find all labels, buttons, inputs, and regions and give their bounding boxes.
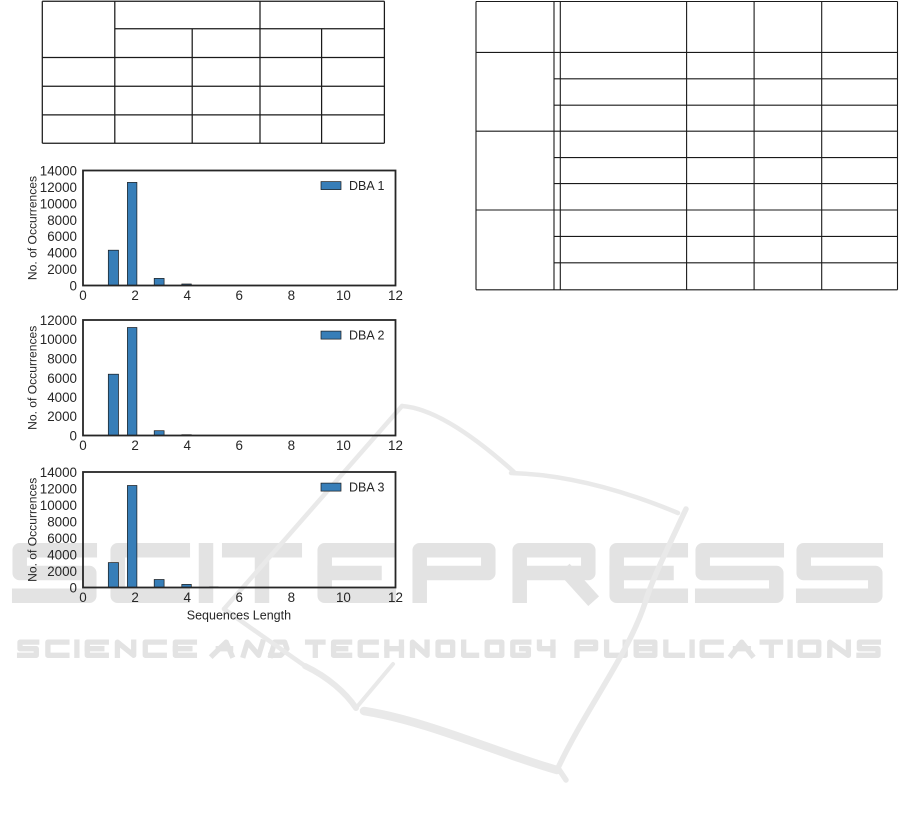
svg-text:12000: 12000 bbox=[40, 313, 77, 328]
svg-text:10000: 10000 bbox=[40, 332, 77, 347]
svg-text:6000: 6000 bbox=[47, 371, 77, 386]
svg-text:10: 10 bbox=[336, 438, 351, 453]
svg-text:12: 12 bbox=[388, 590, 403, 605]
svg-text:8: 8 bbox=[288, 438, 295, 453]
svg-text:4: 4 bbox=[183, 438, 191, 453]
svg-text:2: 2 bbox=[131, 288, 138, 303]
svg-text:Sequences Length: Sequences Length bbox=[187, 608, 291, 622]
svg-text:6: 6 bbox=[235, 438, 242, 453]
svg-text:4000: 4000 bbox=[47, 246, 77, 261]
svg-text:0: 0 bbox=[79, 438, 86, 453]
svg-text:2000: 2000 bbox=[47, 409, 77, 424]
svg-text:0: 0 bbox=[70, 279, 77, 294]
svg-text:6000: 6000 bbox=[47, 229, 77, 244]
svg-text:6: 6 bbox=[235, 288, 242, 303]
svg-text:4000: 4000 bbox=[47, 548, 77, 563]
svg-text:No. of Occurrences: No. of Occurrences bbox=[26, 176, 40, 280]
svg-text:8000: 8000 bbox=[47, 352, 77, 367]
svg-text:12: 12 bbox=[388, 438, 403, 453]
svg-text:DBA 2: DBA 2 bbox=[349, 328, 384, 342]
svg-text:2000: 2000 bbox=[47, 262, 77, 277]
svg-text:10: 10 bbox=[336, 288, 351, 303]
svg-text:6000: 6000 bbox=[47, 531, 77, 546]
svg-text:0: 0 bbox=[70, 429, 77, 444]
svg-text:8000: 8000 bbox=[47, 213, 77, 228]
svg-text:12000: 12000 bbox=[40, 180, 77, 195]
svg-text:14000: 14000 bbox=[40, 465, 77, 480]
svg-text:8: 8 bbox=[288, 590, 295, 605]
svg-text:No. of Occurrences: No. of Occurrences bbox=[26, 326, 40, 430]
svg-text:2000: 2000 bbox=[47, 564, 77, 579]
svg-text:0: 0 bbox=[70, 581, 77, 596]
svg-text:10000: 10000 bbox=[40, 498, 77, 513]
svg-text:4: 4 bbox=[183, 590, 191, 605]
svg-text:DBA 1: DBA 1 bbox=[349, 179, 384, 193]
svg-text:14000: 14000 bbox=[40, 164, 77, 179]
svg-text:2: 2 bbox=[131, 590, 138, 605]
svg-text:4: 4 bbox=[183, 288, 191, 303]
svg-text:0: 0 bbox=[79, 288, 86, 303]
svg-text:12000: 12000 bbox=[40, 482, 77, 497]
svg-text:2: 2 bbox=[131, 438, 138, 453]
svg-text:8: 8 bbox=[288, 288, 295, 303]
svg-text:10000: 10000 bbox=[40, 196, 77, 211]
svg-text:DBA 3: DBA 3 bbox=[349, 480, 384, 494]
svg-text:4000: 4000 bbox=[47, 390, 77, 405]
svg-text:12: 12 bbox=[388, 288, 403, 303]
svg-text:6: 6 bbox=[235, 590, 242, 605]
svg-text:8000: 8000 bbox=[47, 515, 77, 530]
svg-text:No. of Occurrences: No. of Occurrences bbox=[26, 478, 40, 582]
svg-text:10: 10 bbox=[336, 590, 351, 605]
svg-text:0: 0 bbox=[79, 590, 86, 605]
